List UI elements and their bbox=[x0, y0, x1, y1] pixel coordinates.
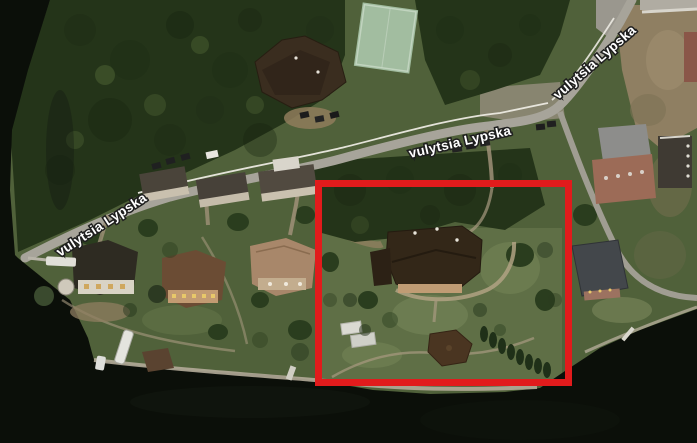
tennis-court bbox=[354, 2, 418, 73]
red-building-northeast bbox=[684, 32, 697, 82]
satellite-map-viewport[interactable]: vulytsia Lypska vulytsia Lypska vulytsia… bbox=[0, 0, 697, 443]
waterfront-mansion-light-brown bbox=[250, 238, 316, 296]
satellite-image: vulytsia Lypska vulytsia Lypska vulytsia… bbox=[0, 0, 697, 443]
